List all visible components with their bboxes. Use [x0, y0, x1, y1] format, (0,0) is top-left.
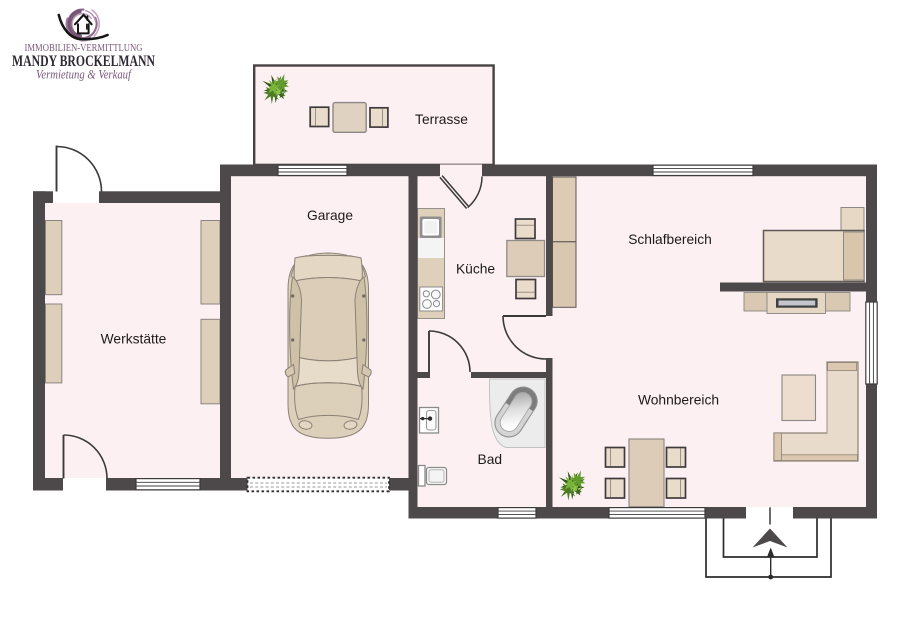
svg-text:Schlafbereich: Schlafbereich	[628, 232, 712, 247]
svg-text:Wohnbereich: Wohnbereich	[638, 393, 719, 408]
svg-text:Bad: Bad	[478, 452, 503, 467]
svg-text:Küche: Küche	[456, 262, 495, 277]
svg-text:Garage: Garage	[307, 208, 353, 223]
svg-text:Vermietung & Verkauf: Vermietung & Verkauf	[36, 68, 133, 82]
svg-text:Werkstätte: Werkstätte	[101, 332, 167, 347]
svg-text:Terrasse: Terrasse	[415, 112, 468, 127]
